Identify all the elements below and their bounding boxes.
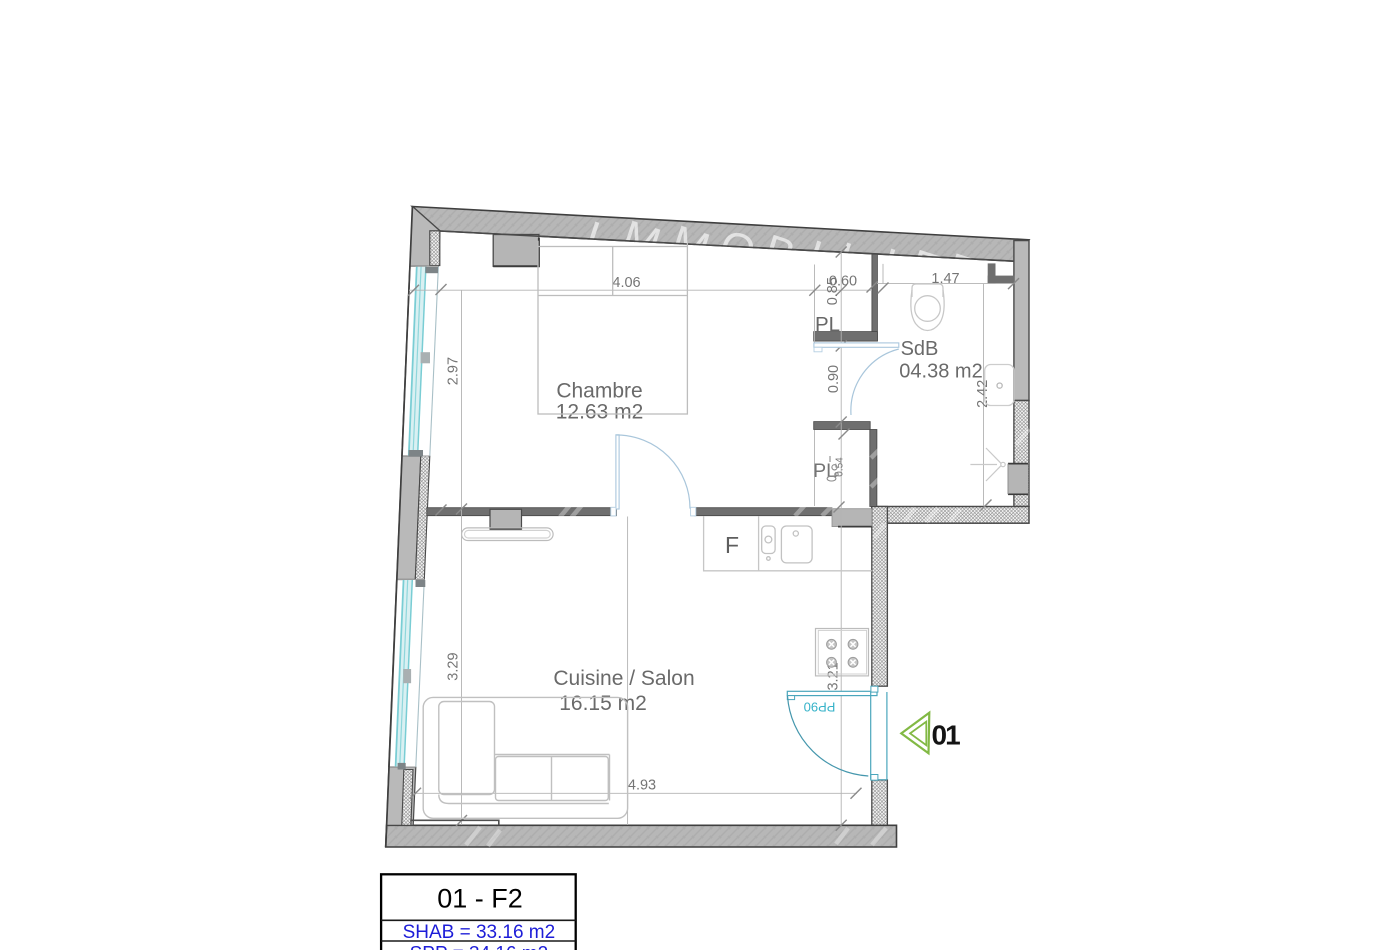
svg-text:4.93: 4.93 [628,778,656,794]
svg-text:PP90: PP90 [804,700,836,715]
svg-text:F: F [725,532,739,558]
svg-text:4.06: 4.06 [612,275,640,291]
svg-text:2.97: 2.97 [446,357,462,385]
svg-text:2.42: 2.42 [975,380,991,408]
svg-text:Cuisine / Salon: Cuisine / Salon [553,667,694,690]
svg-text:01 - F2: 01 - F2 [437,884,523,914]
svg-text:04.38 m2: 04.38 m2 [899,361,982,383]
svg-text:Chambre: Chambre [556,380,642,403]
svg-text:01: 01 [932,720,961,751]
svg-text:SdB: SdB [901,338,939,360]
svg-text:3.29: 3.29 [446,652,462,680]
svg-text:0.90: 0.90 [826,365,842,393]
svg-text:SHAB = 33.16 m2: SHAB = 33.16 m2 [403,922,556,943]
svg-text:12.63 m2: 12.63 m2 [556,401,644,424]
svg-text:PL: PL [813,460,837,482]
svg-text:SPP = 34.16 m2: SPP = 34.16 m2 [410,944,549,950]
svg-text:PL: PL [815,313,840,336]
svg-text:0.85: 0.85 [825,277,841,305]
svg-text:16.15 m2: 16.15 m2 [559,692,647,715]
